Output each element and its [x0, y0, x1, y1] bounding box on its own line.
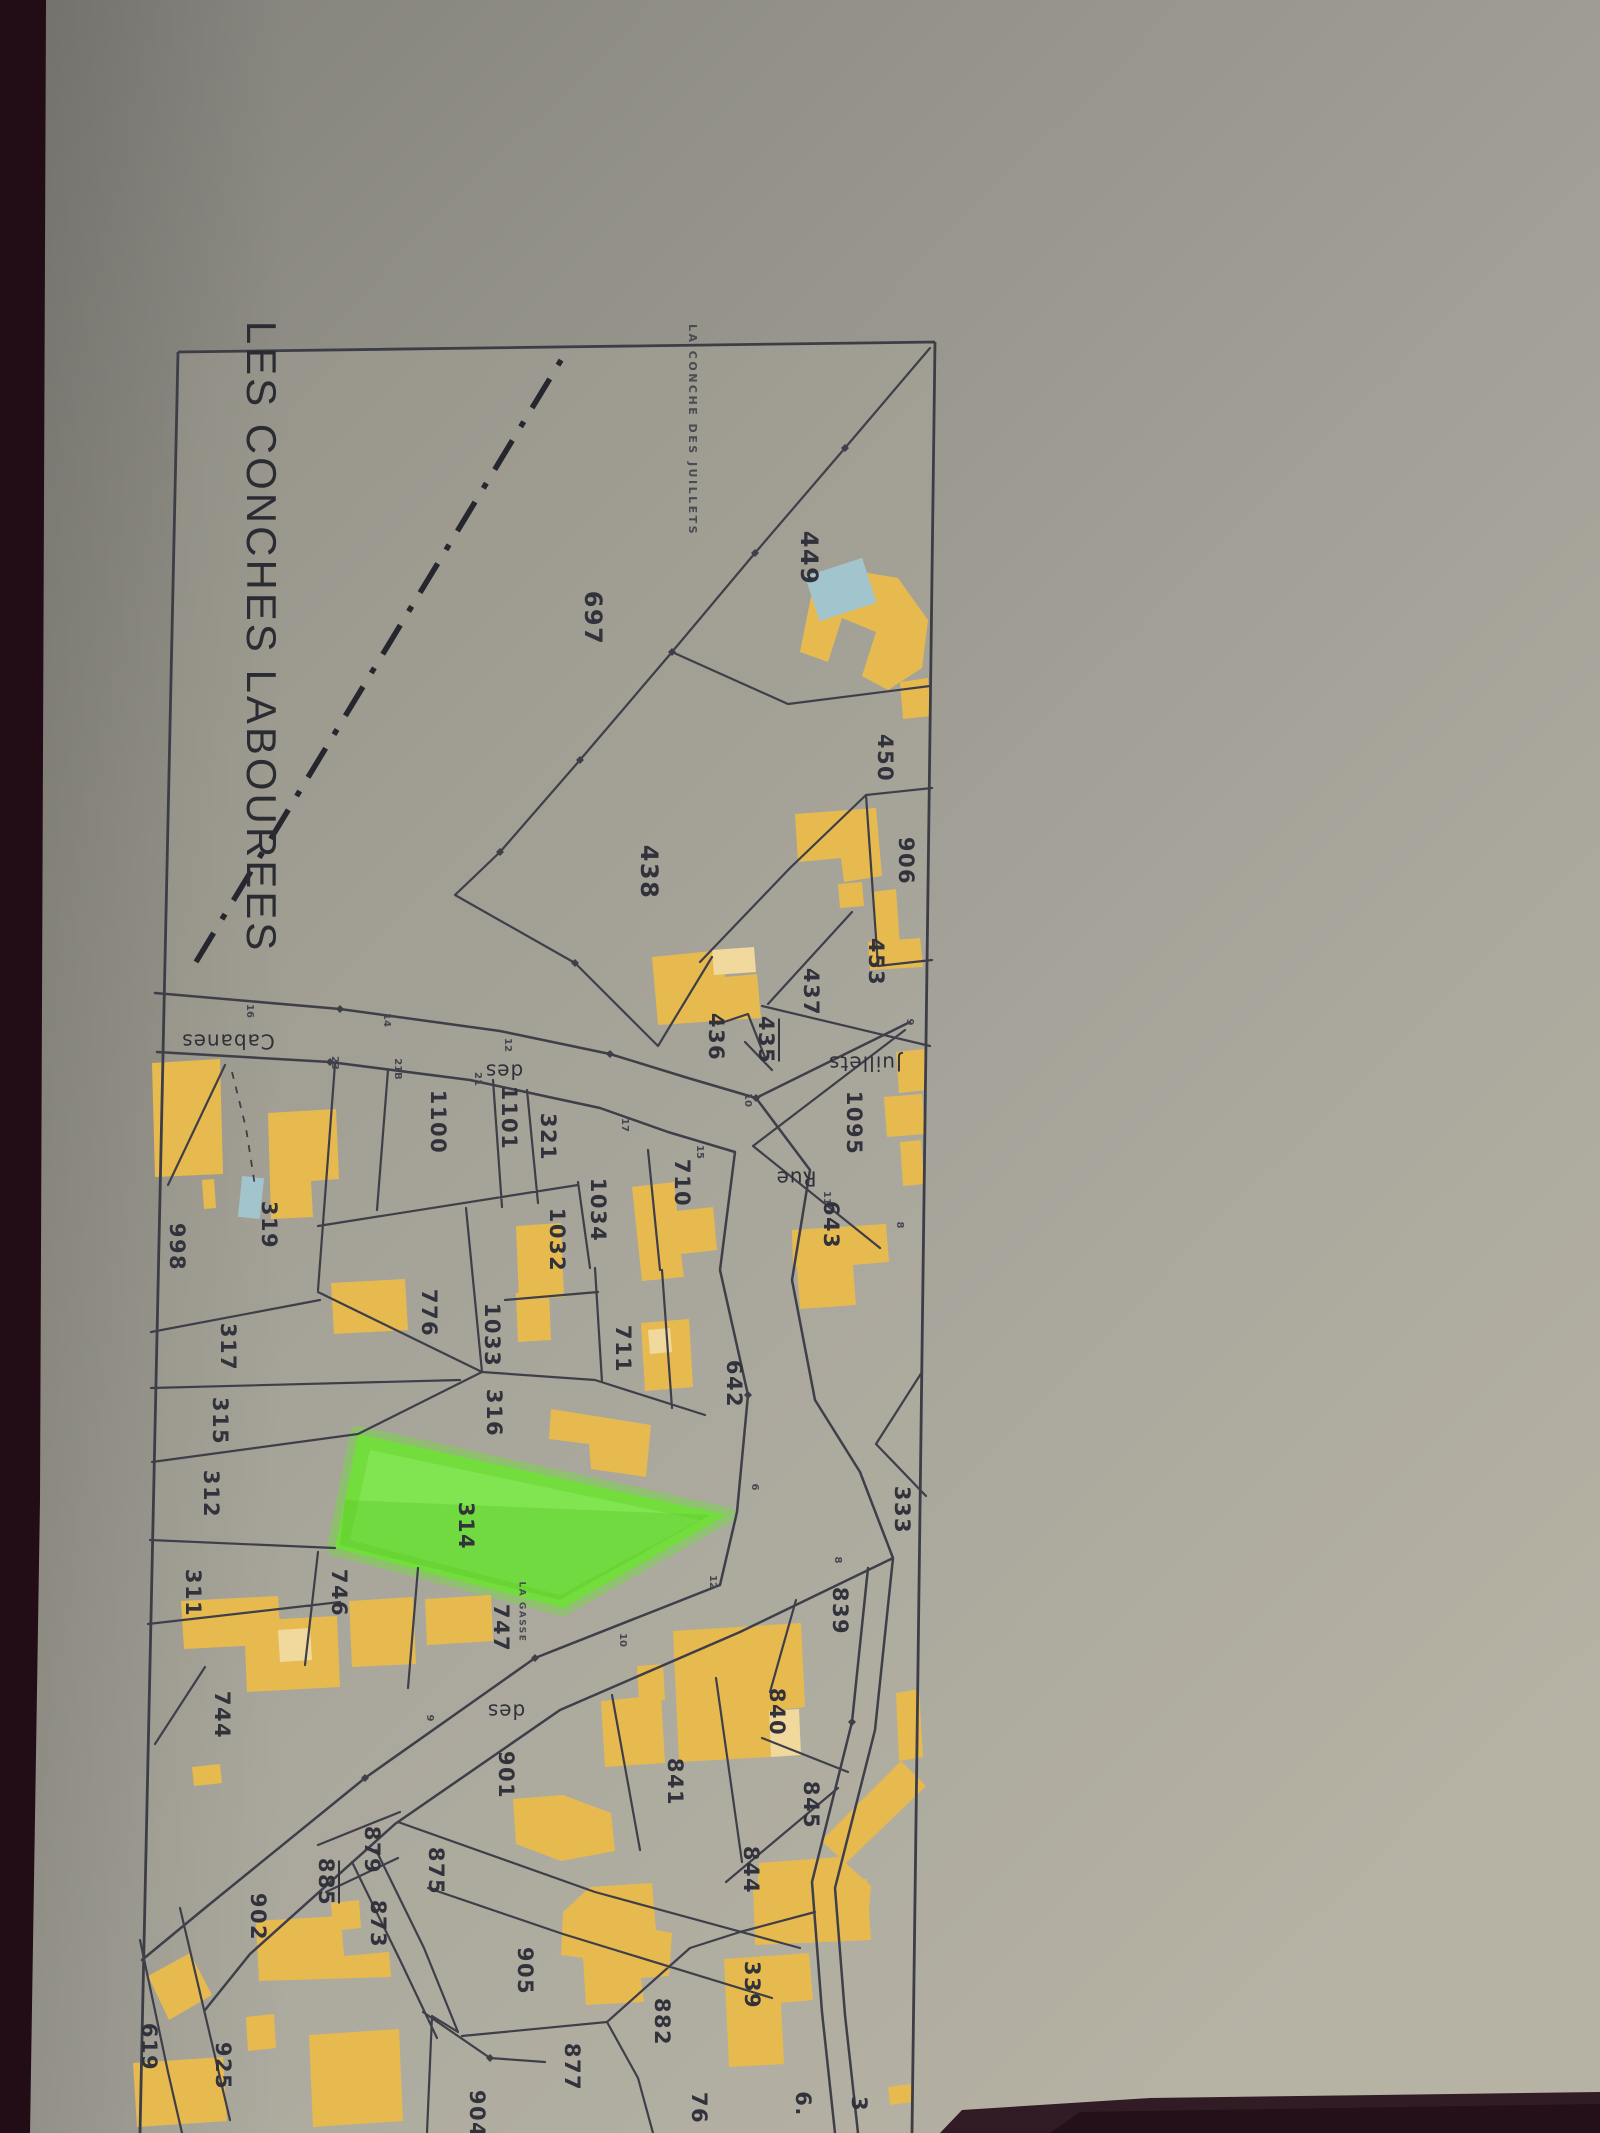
street-label-rue: Rue: [776, 1167, 817, 1191]
parcel-label-643: 643: [819, 1201, 843, 1249]
road-number-8: 8: [832, 1557, 843, 1564]
building-shape: [884, 1094, 925, 1137]
building-shape: [202, 1179, 216, 1209]
building-shape: [192, 1764, 222, 1786]
parcel-label-339: 339: [740, 1961, 764, 2009]
parcel-label-875: 875: [424, 1847, 448, 1895]
parcel-label-711: 711: [611, 1325, 635, 1373]
parcel-label-319: 319: [257, 1201, 281, 1249]
parcel-label-435: 435: [754, 1016, 778, 1064]
building-shape: [888, 2084, 913, 2105]
parcel-label-314: 314: [454, 1502, 478, 1550]
road-number-21: 21: [472, 1072, 483, 1086]
parcel-label-1032: 1032: [545, 1208, 569, 1272]
street-label-des: des: [487, 1700, 525, 1724]
parcel-label-747: 747: [489, 1604, 513, 1652]
parcel-label-453: 453: [864, 938, 888, 986]
parcel-label-1033: 1033: [480, 1303, 504, 1367]
parcel-label-642: 642: [722, 1360, 746, 1408]
street-label-juillets: Juillets: [828, 1052, 904, 1076]
parcel-label-437: 437: [799, 968, 823, 1016]
parcel-label-6-: 6.: [791, 2091, 815, 2117]
parcel-label-311: 311: [181, 1569, 205, 1617]
building-shape: [425, 1595, 493, 1645]
parcel-label-76: 76: [687, 2092, 711, 2124]
parcel-label-438: 438: [635, 845, 663, 900]
cadastral-map: LES CONCHES LABOUREES LA CONCHE DES JUIL…: [0, 0, 1600, 2133]
building-shape: [309, 2029, 403, 2127]
parcel-label-904: 904: [465, 2090, 489, 2133]
parcel-label-845: 845: [799, 1781, 823, 1829]
building-shape: [900, 678, 931, 719]
parcel-label-312: 312: [199, 1470, 223, 1518]
parcel-label-902: 902: [246, 1893, 270, 1941]
road-number-23: 23: [329, 1056, 340, 1070]
parcel-label-882: 882: [650, 1998, 674, 2046]
road-number-10: 10: [617, 1633, 628, 1647]
parcel-label-1101: 1101: [497, 1086, 521, 1150]
parcel-label-321: 321: [536, 1113, 560, 1161]
parcel-label-905: 905: [513, 1947, 537, 1995]
road-number-12: 12: [502, 1038, 513, 1052]
parcel-label-697: 697: [579, 591, 607, 646]
parcel-label-844: 844: [739, 1846, 763, 1894]
road-number-17: 17: [619, 1118, 630, 1132]
parcel-label-3: 3: [847, 2096, 871, 2112]
road-number-8: 8: [894, 1222, 905, 1229]
parcel-label-885: 885: [314, 1858, 338, 1906]
locality-label-la-conche-des-juillets: LA CONCHE DES JUILLETS: [686, 324, 699, 536]
parcel-label-450: 450: [873, 734, 897, 782]
parcel-label-879: 879: [360, 1826, 384, 1874]
parcel-label-998: 998: [165, 1223, 189, 1271]
parcel-label-925: 925: [211, 2042, 235, 2090]
parcel-label-449: 449: [795, 531, 823, 586]
road-number-15: 15: [694, 1145, 705, 1159]
building-shape: [900, 1140, 924, 1186]
parcel-label-710: 710: [670, 1159, 694, 1207]
parcel-label-1100: 1100: [426, 1090, 450, 1154]
parcel-label-315: 315: [208, 1397, 232, 1445]
parcel-label-841: 841: [663, 1758, 687, 1806]
parcel-label-839: 839: [828, 1587, 852, 1635]
road-number-9: 9: [424, 1715, 435, 1722]
parcel-label-744: 744: [210, 1691, 234, 1739]
parcel-label-1095: 1095: [842, 1091, 866, 1155]
building-shape: [349, 1597, 416, 1667]
parcel-label-317: 317: [216, 1323, 240, 1371]
building-shape: [601, 1695, 665, 1767]
building-annex-shape: [712, 947, 756, 975]
road-number-11: 11: [821, 1191, 832, 1205]
road-number-14: 14: [381, 1013, 392, 1027]
road-number-16: 16: [244, 1004, 255, 1018]
building-shape: [838, 882, 864, 908]
parcel-label-877: 877: [560, 2043, 584, 2091]
parcel-label-333: 333: [890, 1486, 914, 1534]
street-label-des: des: [485, 1060, 523, 1084]
road-number-21b: 21B: [392, 1058, 403, 1080]
parcel-label-906: 906: [894, 837, 918, 885]
parcel-label-1034: 1034: [586, 1178, 610, 1242]
locality-label-la-gasse: LA GASSE: [517, 1582, 527, 1643]
road-number-12: 12: [707, 1575, 718, 1589]
road-number-9: 9: [904, 1019, 915, 1026]
parcel-label-776: 776: [417, 1289, 441, 1337]
parcel-label-840: 840: [765, 1688, 789, 1736]
parcel-label-746: 746: [327, 1569, 351, 1617]
parcel-label-619: 619: [137, 2023, 161, 2071]
road-number-6: 6: [749, 1484, 760, 1491]
street-label-cabanes: Cabanes: [181, 1030, 275, 1054]
building-shape: [246, 2014, 276, 2051]
parcel-label-901: 901: [494, 1751, 518, 1799]
photo-of-cadastral-map: LES CONCHES LABOUREES LA CONCHE DES JUIL…: [0, 0, 1600, 2133]
building-shape: [331, 1279, 408, 1334]
parcel-label-436: 436: [704, 1013, 728, 1061]
parcel-label-316: 316: [482, 1389, 506, 1437]
parcel-label-873: 873: [366, 1900, 390, 1948]
road-number-10: 10: [742, 1093, 753, 1107]
map-title: LES CONCHES LABOUREES: [238, 321, 285, 954]
